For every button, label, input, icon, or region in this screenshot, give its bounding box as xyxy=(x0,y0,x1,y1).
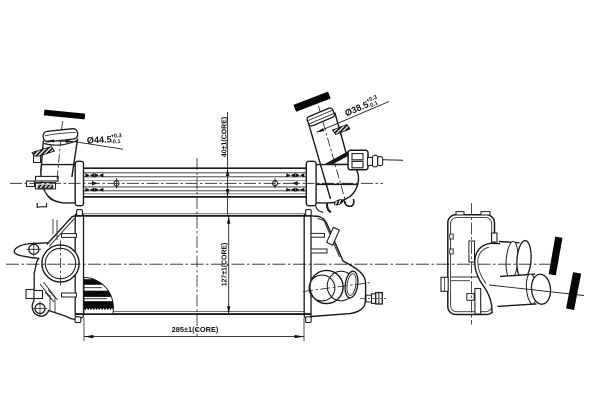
svg-text:-0.1: -0.1 xyxy=(111,139,121,145)
svg-text:40±1(CORE): 40±1(CORE) xyxy=(221,117,228,157)
svg-text:Ø44.5: Ø44.5 xyxy=(87,134,112,145)
svg-text:285±1(CORE): 285±1(CORE) xyxy=(172,325,219,334)
